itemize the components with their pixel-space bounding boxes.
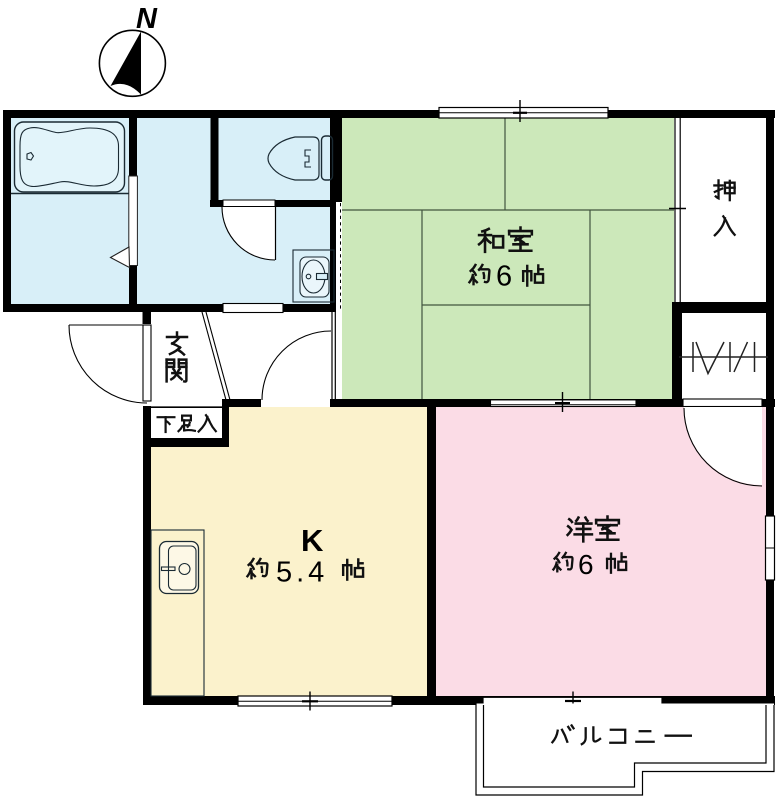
svg-text:6: 6 [578, 549, 594, 580]
svg-text:6: 6 [496, 261, 512, 293]
svg-text:N: N [136, 3, 158, 35]
svg-text:K: K [301, 523, 324, 558]
svg-text:5.4: 5.4 [276, 557, 328, 589]
